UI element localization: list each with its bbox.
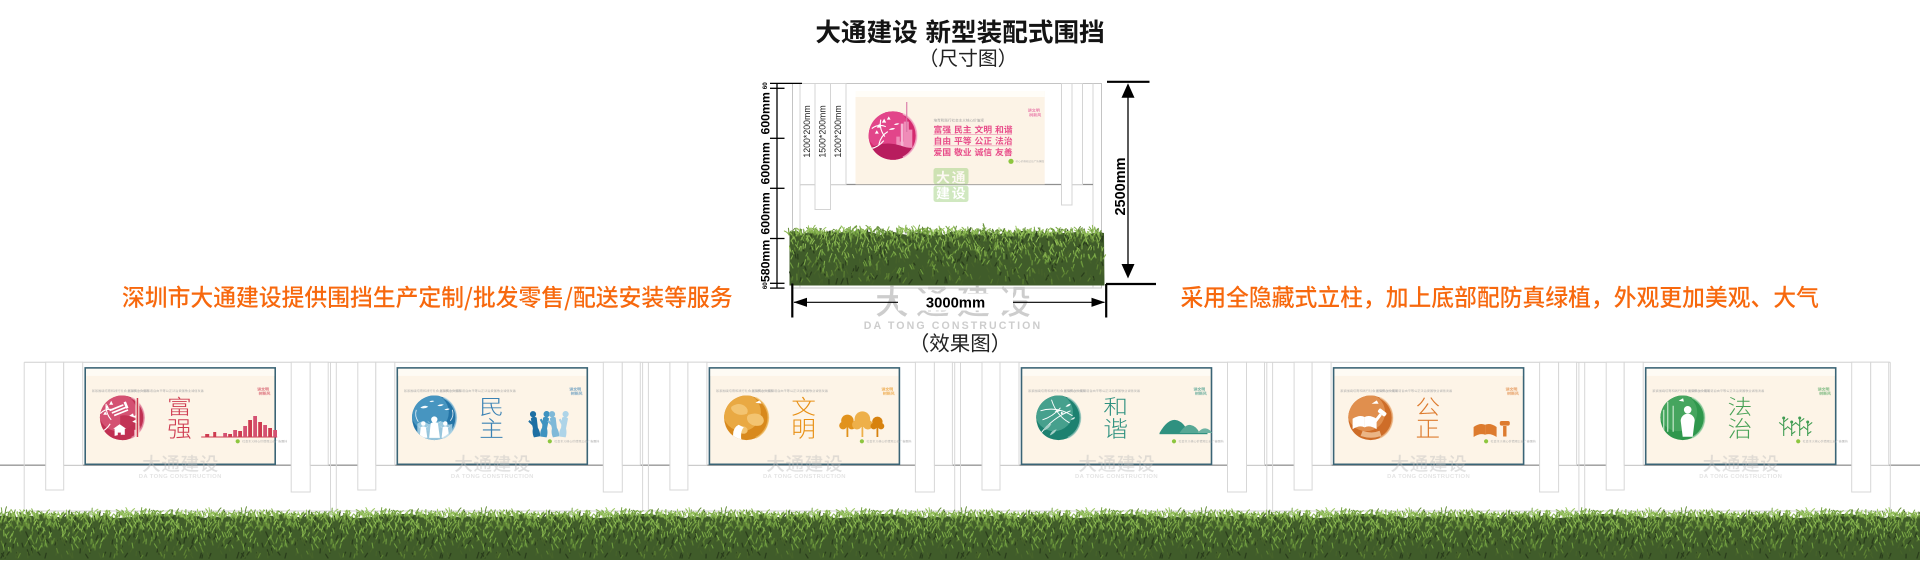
svg-text:600mm: 600mm	[758, 92, 772, 134]
svg-text:1500*200mm: 1500*200mm	[818, 105, 828, 157]
svg-text:1200*200mm: 1200*200mm	[833, 105, 843, 157]
svg-text:1200*200mm: 1200*200mm	[802, 105, 812, 157]
svg-text:600mm: 600mm	[758, 192, 772, 234]
svg-text:3000mm: 3000mm	[926, 295, 985, 311]
svg-text:2500mm: 2500mm	[1113, 157, 1129, 215]
svg-text:60: 60	[762, 282, 769, 289]
svg-text:600mm: 600mm	[758, 142, 772, 184]
svg-text:580mm: 580mm	[758, 240, 772, 282]
svg-text:60: 60	[762, 82, 769, 89]
svg-text:DA TONG CONSTRUCTION: DA TONG CONSTRUCTION	[864, 320, 1043, 332]
